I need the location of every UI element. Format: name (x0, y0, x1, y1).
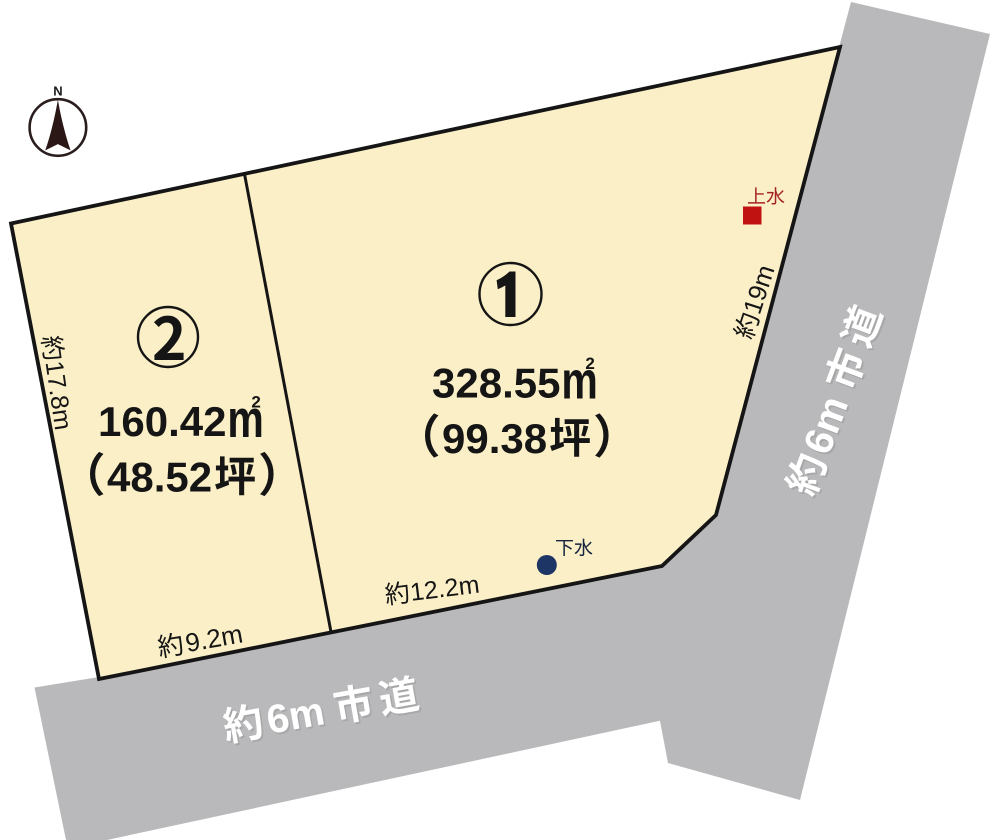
svg-text:328.55: 328.55 (432, 360, 560, 407)
svg-text:160.42: 160.42 (98, 398, 226, 445)
svg-text:2: 2 (585, 354, 594, 373)
svg-text:99.38: 99.38 (442, 415, 547, 462)
svg-text:N: N (53, 84, 62, 99)
svg-text:2: 2 (251, 393, 260, 412)
svg-text:48.52: 48.52 (107, 454, 212, 501)
